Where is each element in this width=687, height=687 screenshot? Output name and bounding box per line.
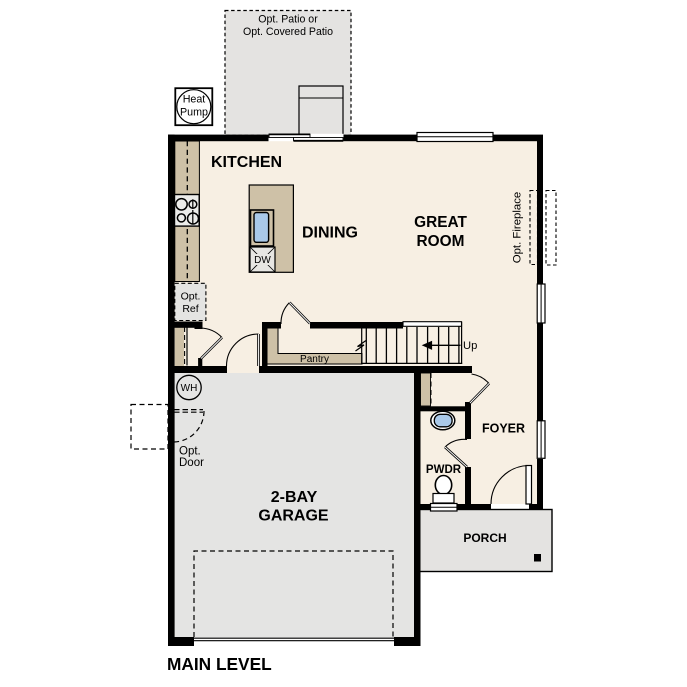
svg-text:Up: Up (463, 340, 477, 352)
svg-text:Opt. Fireplace: Opt. Fireplace (512, 192, 524, 264)
svg-text:Door: Door (179, 457, 204, 469)
svg-text:DINING: DINING (302, 225, 358, 242)
svg-text:MAIN LEVEL: MAIN LEVEL (167, 654, 272, 674)
svg-text:Opt. Covered Patio: Opt. Covered Patio (243, 26, 333, 38)
svg-text:PWDR: PWDR (426, 464, 462, 476)
svg-text:KITCHEN: KITCHEN (211, 154, 282, 171)
svg-text:DW: DW (254, 255, 271, 266)
svg-text:PORCH: PORCH (463, 531, 506, 545)
svg-text:Ref: Ref (182, 303, 198, 315)
svg-text:Opt.: Opt. (181, 291, 201, 303)
svg-text:GARAGE: GARAGE (258, 508, 329, 525)
svg-text:2-BAY: 2-BAY (271, 489, 318, 506)
svg-text:ROOM: ROOM (417, 233, 465, 250)
svg-text:Pump: Pump (180, 107, 208, 119)
svg-text:Pantry: Pantry (300, 354, 329, 365)
svg-text:Heat: Heat (183, 94, 206, 106)
svg-text:FOYER: FOYER (482, 422, 525, 436)
svg-text:Opt.: Opt. (179, 446, 201, 458)
svg-text:GREAT: GREAT (414, 214, 467, 231)
svg-text:WH: WH (181, 383, 198, 394)
svg-text:Opt. Patio or: Opt. Patio or (258, 14, 318, 26)
